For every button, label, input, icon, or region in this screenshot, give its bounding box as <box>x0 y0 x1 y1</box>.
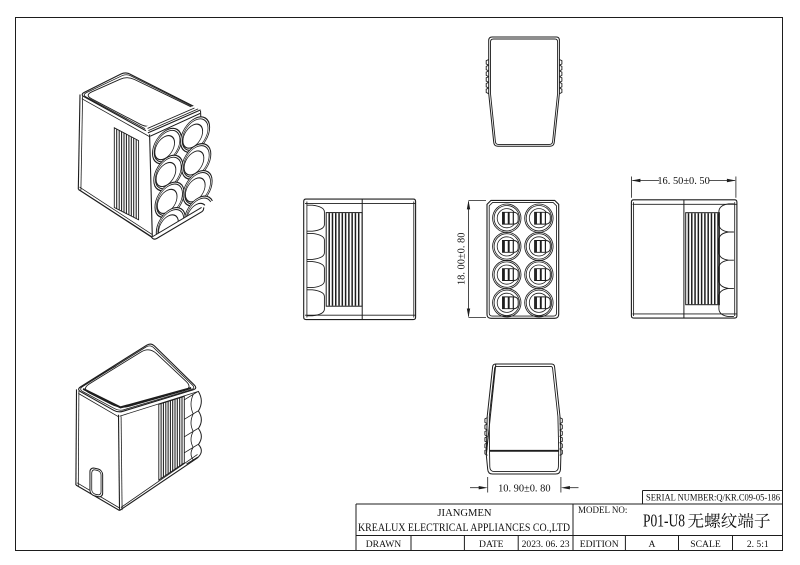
svg-text:18. 00±0. 80: 18. 00±0. 80 <box>457 233 468 285</box>
svg-text:EDITION: EDITION <box>580 539 619 550</box>
svg-text:2. 5:1: 2. 5:1 <box>747 539 769 550</box>
svg-text:MODEL NO:: MODEL NO: <box>578 505 627 515</box>
svg-text:2023. 06. 23: 2023. 06. 23 <box>522 539 570 550</box>
svg-text:16. 50±0. 50: 16. 50±0. 50 <box>657 176 709 187</box>
svg-text:SERIAL NUMBER:Q/KR.C09-05-186: SERIAL NUMBER:Q/KR.C09-05-186 <box>646 494 780 504</box>
svg-text:DRAWN: DRAWN <box>366 539 402 550</box>
svg-text:JIANGMEN: JIANGMEN <box>437 508 491 519</box>
svg-text:A: A <box>648 539 655 550</box>
svg-text:P01-U8: P01-U8 <box>643 511 685 531</box>
svg-text:DATE: DATE <box>479 539 504 550</box>
svg-text:KREALUX ELECTRICAL APPLIANCES: KREALUX ELECTRICAL APPLIANCES CO.,LTD <box>358 521 570 534</box>
svg-text:SCALE: SCALE <box>690 539 721 550</box>
svg-text:10. 90±0. 80: 10. 90±0. 80 <box>498 483 550 494</box>
